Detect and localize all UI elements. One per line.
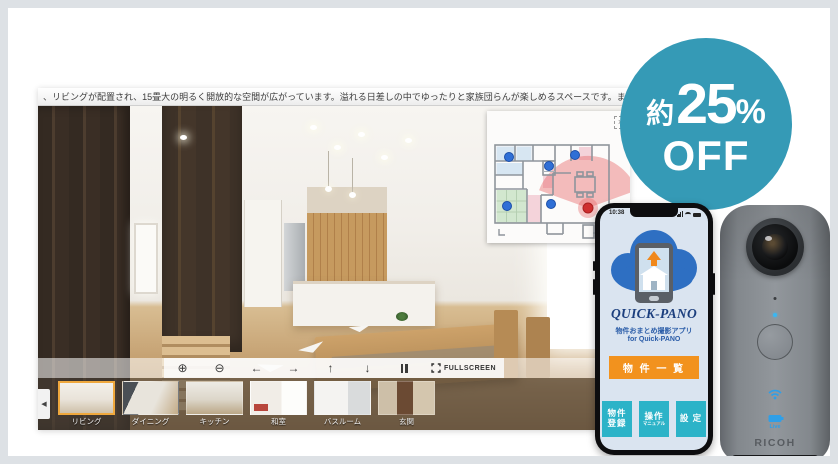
thumbnail-label: バスルーム [314, 416, 371, 427]
button-label: マニュアル [643, 421, 665, 426]
discount-amount: 約25% [646, 76, 766, 133]
scene-dark-wall-stair [162, 106, 242, 352]
camera-mic-icon [774, 297, 777, 300]
camera-status-led [773, 313, 777, 317]
pause-icon [401, 364, 408, 373]
scene-closet [244, 200, 282, 307]
property-register-button[interactable]: 物件 登録 [602, 401, 632, 437]
scene-downlight [405, 138, 412, 143]
button-label: 設 定 [680, 414, 702, 424]
phone-notch [630, 208, 678, 217]
pan-right-button[interactable]: → [275, 358, 312, 378]
thumbnail-image [58, 381, 115, 415]
scene-downlight [334, 145, 341, 150]
cloud-phone-icon [635, 243, 673, 303]
scene-small-window [134, 223, 158, 294]
app-logo-text: QUICK-PANO [611, 306, 697, 322]
panorama-view[interactable]: × ⊕ ⊖ ← → ↑ ↓ [38, 106, 630, 430]
thumbnail-image [378, 381, 435, 415]
thumbnail-label: 和室 [250, 416, 307, 427]
scene-thumbnail-strip: ◀ リビング ダイニング キッチン [38, 378, 630, 430]
thumbnail-living[interactable]: リビング [58, 381, 115, 427]
discount-badge: 約25% OFF [620, 38, 792, 210]
discount-prefix: 約 [646, 100, 674, 128]
zoom-out-button[interactable]: ⊖ [201, 358, 238, 378]
pan-left-button[interactable]: ← [238, 358, 275, 378]
property-list-button[interactable]: 物 件 一 覧 [609, 356, 699, 379]
fullscreen-button[interactable]: FULLSCREEN [423, 363, 504, 373]
phone-screen: 10:38 QUICK-PANO 物件おま [600, 208, 708, 450]
camera-lens [746, 218, 804, 276]
thumbnail-label: 玄関 [378, 416, 435, 427]
thumbnail-label: リビング [58, 416, 115, 427]
thumbnail-image [314, 381, 371, 415]
promo-graphic: 、リビングが配置され、15畳大の明るく開放的な空間が広がっています。溢れる日差し… [0, 0, 838, 464]
thumbnail-bathroom[interactable]: バスルーム [314, 381, 371, 427]
camera-body: Live RICOH [720, 205, 830, 456]
upload-arrow-icon [647, 251, 661, 260]
app-button-row: 物件 登録 操作 マニュアル 設 定 [602, 401, 706, 437]
thumbnail-image [186, 381, 243, 415]
fullscreen-icon [431, 363, 441, 373]
scene-downlight [310, 125, 317, 130]
camera-brand-label: RICOH [754, 437, 795, 449]
discount-off-label: OFF [663, 135, 750, 177]
app-logo-cloud [610, 229, 698, 303]
button-label: 操作 [644, 412, 663, 422]
camera-base [732, 455, 818, 456]
pan-down-button[interactable]: ↓ [349, 358, 386, 378]
button-label: 登録 [607, 419, 626, 429]
scene-pendant-light [352, 158, 353, 194]
thumbnail-label: ダイニング [122, 416, 179, 427]
phone-power-button [713, 273, 715, 295]
operation-manual-button[interactable]: 操作 マニュアル [639, 401, 669, 437]
scene-plant [396, 312, 408, 321]
camera-battery-icon [769, 415, 782, 422]
battery-icon [693, 213, 701, 217]
camera-live-label: Live [769, 424, 780, 430]
house-icon [643, 275, 665, 290]
panorama-viewer: 、リビングが配置され、15畳大の明るく開放的な空間が広がっています。溢れる日差し… [38, 88, 630, 430]
settings-button[interactable]: 設 定 [676, 401, 706, 437]
scene-kitchen-soffit [307, 187, 387, 213]
smartphone-mockup: 10:38 QUICK-PANO 物件おま [595, 203, 713, 455]
scene-downlight [358, 132, 365, 137]
scene-kitchen-island [293, 281, 435, 326]
thumbnail-dining[interactable]: ダイニング [122, 381, 179, 427]
thumbnail-washitsu[interactable]: 和室 [250, 381, 307, 427]
discount-number: 25 [676, 76, 735, 133]
zoom-in-button[interactable]: ⊕ [164, 358, 201, 378]
phone-volume-button [593, 279, 595, 295]
canvas: 、リビングが配置され、15畳大の明るく開放的な空間が広がっています。溢れる日差し… [8, 8, 830, 456]
app-subtitle-2: for Quick-PANO [628, 336, 681, 343]
phone-status-time: 10:38 [609, 210, 624, 220]
thumbnail-image [122, 381, 179, 415]
camera-shutter-button [757, 324, 793, 360]
theta-camera: Live RICOH [720, 205, 830, 456]
phone-volume-button [593, 261, 595, 271]
phone-status-icons [677, 210, 701, 217]
thumbnail-kitchen[interactable]: キッチン [186, 381, 243, 427]
discount-percent-sign: % [736, 95, 766, 129]
app-subtitle: 物件おまとめ撮影アプリ [616, 326, 693, 336]
scene-downlight [381, 155, 388, 160]
camera-wifi-icon [767, 387, 783, 405]
pan-up-button[interactable]: ↑ [312, 358, 349, 378]
thumbnail-label: キッチン [186, 416, 243, 427]
wifi-icon [685, 212, 691, 217]
pause-button[interactable] [386, 358, 423, 378]
thumbnail-prev-button[interactable]: ◀ [38, 389, 50, 419]
thumbnail-image [250, 381, 307, 415]
scene-kitchen-cabinets [307, 213, 387, 281]
scene-pendant-light [328, 151, 329, 187]
viewer-toolbar: ⊕ ⊖ ← → ↑ ↓ FULLSCREEN [38, 358, 630, 378]
fullscreen-label: FULLSCREEN [444, 365, 496, 372]
property-description-marquee: 、リビングが配置され、15畳大の明るく開放的な空間が広がっています。溢れる日差し… [38, 88, 630, 106]
thumbnail-entrance[interactable]: 玄関 [378, 381, 435, 427]
